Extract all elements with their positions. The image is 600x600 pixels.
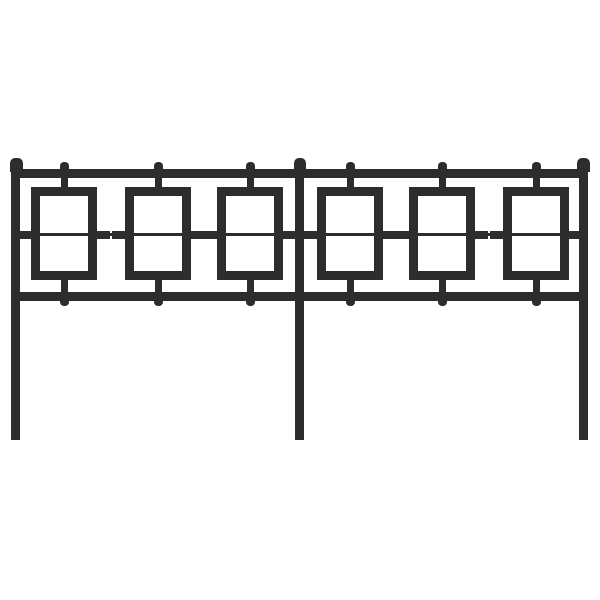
headboard-frame [0,0,600,600]
panel-rectangle [317,187,383,280]
left-connector-stub [112,231,127,239]
top-weld-nub [60,162,69,170]
bottom-connector-stub [247,278,254,294]
panel-rectangle [31,187,97,280]
left-connector-stub [18,231,33,239]
bottom-weld-nub [246,297,255,306]
finial-cap-left [10,158,23,172]
top-connector-stub [439,176,446,189]
panel-rectangle [217,187,283,280]
left-connector-stub [204,231,219,239]
top-connector-stub [155,176,162,189]
right-connector-stub [381,231,396,239]
left-connector-stub [396,231,411,239]
product-photo [0,0,600,600]
bottom-weld-nub [346,297,355,306]
bottom-weld-nub [154,297,163,306]
right-connector-stub [567,231,582,239]
bottom-connector-stub [347,278,354,294]
right-connector-stub [473,231,488,239]
headboard-leg-right [579,166,588,440]
top-connector-stub [247,176,254,189]
finial-cap-right [577,158,590,172]
panel-rectangle [503,187,569,280]
top-weld-nub [438,162,447,170]
headboard-leg-left [11,166,20,440]
top-connector-stub [61,176,68,189]
top-weld-nub [246,162,255,170]
finial-cap-center [294,158,306,172]
panel-rectangle [409,187,475,280]
headboard-leg-center [295,166,304,440]
right-connector-stub [281,231,296,239]
bottom-connector-stub [439,278,446,294]
right-connector-stub [189,231,204,239]
bottom-connector-stub [533,278,540,294]
top-connector-stub [533,176,540,189]
bottom-connector-stub [61,278,68,294]
panel-rectangle [125,187,191,280]
left-connector-stub [304,231,319,239]
top-weld-nub [346,162,355,170]
left-connector-stub [490,231,505,239]
top-weld-nub [154,162,163,170]
top-connector-stub [347,176,354,189]
top-weld-nub [532,162,541,170]
bottom-weld-nub [438,297,447,306]
right-connector-stub [95,231,110,239]
bottom-connector-stub [155,278,162,294]
bottom-weld-nub [60,297,69,306]
bottom-weld-nub [532,297,541,306]
